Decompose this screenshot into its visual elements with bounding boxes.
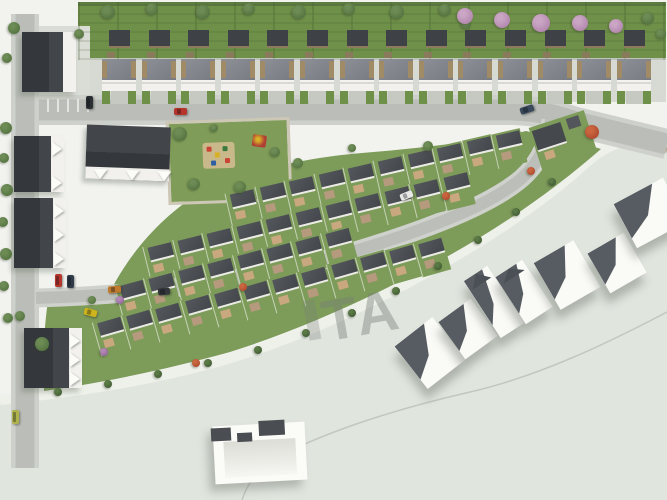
canopy-triangle — [70, 372, 80, 386]
tree — [243, 3, 255, 15]
roof — [302, 266, 329, 287]
tree — [35, 337, 49, 351]
terrace-right — [210, 61, 215, 78]
car — [158, 287, 171, 295]
patio — [271, 235, 283, 245]
front-green-r — [445, 91, 453, 104]
main-roof — [260, 59, 294, 82]
roof — [148, 242, 175, 262]
rear-patio — [543, 52, 551, 58]
roof — [467, 136, 494, 156]
patio — [272, 264, 284, 274]
roof — [384, 186, 411, 206]
site-plan-render: TA — [0, 0, 667, 500]
mid-house — [202, 256, 240, 298]
terrace-right — [646, 61, 651, 78]
tree — [609, 19, 623, 33]
canopy-triangle — [157, 171, 171, 181]
driveway — [309, 91, 326, 104]
terrace-left — [300, 61, 305, 78]
driveway — [467, 91, 484, 104]
mid-house — [432, 141, 469, 182]
terrace-right — [329, 61, 334, 78]
driveway — [269, 91, 286, 104]
car — [12, 410, 19, 424]
patio — [249, 302, 261, 312]
tree — [439, 4, 451, 16]
tree — [0, 217, 8, 227]
terraced-house — [615, 28, 654, 104]
terrace-right — [289, 61, 294, 78]
tree — [585, 125, 599, 139]
terraced-house — [100, 28, 139, 104]
roof — [237, 250, 264, 271]
terrace-left — [102, 61, 107, 78]
mid-house — [173, 263, 211, 305]
play-equipment — [211, 160, 216, 165]
patio — [360, 214, 372, 224]
tree — [390, 5, 404, 19]
rear-patio — [582, 52, 590, 58]
play-equipment — [225, 158, 230, 163]
main-roof — [142, 59, 176, 82]
front-green-l — [538, 91, 546, 104]
front-green-r — [564, 91, 572, 104]
mid-house — [150, 300, 188, 342]
facade — [181, 84, 215, 91]
front-green-r — [603, 91, 611, 104]
terraced-house — [219, 28, 258, 104]
future-road-line — [242, 312, 667, 500]
top-garden-strip — [78, 2, 666, 62]
front-green-r — [286, 91, 294, 104]
roof-slope — [534, 240, 601, 310]
mid-house — [379, 184, 417, 225]
car — [519, 104, 534, 115]
terrace-left — [221, 61, 226, 78]
apartment-building — [14, 136, 64, 192]
facade — [419, 84, 453, 91]
patio — [242, 242, 254, 252]
rear-roof — [505, 30, 526, 48]
driveway — [111, 91, 128, 104]
terrace-left — [260, 61, 265, 78]
tree — [116, 296, 124, 304]
roof — [214, 288, 241, 309]
front-green-r — [524, 91, 532, 104]
patio — [337, 280, 349, 290]
front-green-r — [484, 91, 492, 104]
patio — [330, 221, 342, 231]
terrace-left — [577, 61, 582, 78]
mid-house — [92, 315, 130, 357]
mid-house — [121, 307, 159, 349]
terrace-right — [171, 61, 176, 78]
terrace-left — [498, 61, 503, 78]
patio — [220, 309, 232, 319]
tree — [293, 158, 303, 168]
roof — [14, 198, 66, 268]
tree — [154, 370, 162, 378]
tree — [254, 346, 262, 354]
terraced-house — [536, 28, 575, 104]
tree — [343, 3, 355, 15]
roof — [266, 214, 293, 234]
car — [108, 286, 121, 294]
tree — [642, 12, 654, 24]
front-green-l — [617, 91, 625, 104]
canopy-triangle — [52, 142, 62, 156]
car-glass — [160, 289, 165, 294]
car-glass — [522, 107, 528, 113]
mid-house — [290, 233, 328, 275]
roof — [149, 272, 176, 293]
terraced-house — [179, 28, 218, 104]
front-green-r — [366, 91, 374, 104]
roof — [355, 193, 382, 213]
rear-patio — [226, 52, 234, 58]
play-equipment — [206, 147, 211, 152]
roof — [325, 200, 352, 220]
white-concept-house — [394, 317, 465, 389]
patio — [243, 271, 255, 281]
roof — [156, 302, 183, 323]
main-roof — [419, 59, 453, 82]
rear-patio — [345, 52, 353, 58]
roof — [243, 281, 270, 302]
front-green-l — [419, 91, 427, 104]
driveway — [388, 91, 405, 104]
tree — [0, 122, 12, 134]
main-roof — [458, 59, 492, 82]
roof — [24, 328, 82, 388]
hedge-texture — [78, 2, 666, 60]
facade — [498, 84, 532, 91]
tree — [100, 348, 108, 356]
tree — [572, 15, 588, 31]
terrace-right — [250, 61, 255, 78]
facade-strip — [69, 328, 82, 388]
terraced-house — [298, 28, 337, 104]
terrace-left — [419, 61, 424, 78]
front-green-l — [181, 91, 189, 104]
roof-slope — [464, 266, 525, 338]
roof-slope — [394, 317, 465, 389]
front-green-l — [260, 91, 268, 104]
tree — [302, 329, 310, 337]
car-glass — [56, 276, 58, 285]
car-glass — [13, 412, 15, 422]
rear-patio — [107, 52, 115, 58]
tree — [494, 12, 510, 28]
terrace-right — [369, 61, 374, 78]
rear-roof — [228, 30, 249, 48]
mid-house — [343, 161, 380, 202]
tree — [88, 296, 96, 304]
main-roof — [102, 59, 136, 82]
canopy-triangle — [54, 228, 64, 242]
rear-patio — [186, 52, 194, 58]
facade — [221, 84, 255, 91]
white-concept-house — [587, 233, 646, 294]
parking-lines — [48, 99, 88, 112]
patio — [383, 177, 395, 187]
car — [399, 190, 414, 201]
tree — [192, 359, 200, 367]
canopy-triangle — [54, 252, 64, 266]
car-glass — [86, 309, 92, 315]
patio — [191, 316, 203, 326]
patio — [125, 301, 137, 311]
terrace-right — [527, 61, 532, 78]
roof-tab-mid — [237, 432, 252, 442]
driveway — [547, 91, 564, 104]
terrace-right — [487, 61, 492, 78]
tree — [0, 153, 9, 163]
facade-strip — [85, 167, 169, 182]
patio — [301, 256, 313, 266]
tree — [656, 29, 666, 39]
rear-patio — [622, 52, 630, 58]
terrace-right — [606, 61, 611, 78]
facade — [617, 84, 651, 91]
roof — [407, 150, 434, 170]
mid-house — [325, 257, 363, 299]
car-glass — [110, 287, 115, 292]
mid-house — [231, 219, 269, 260]
roof — [97, 317, 124, 338]
mid-house — [320, 198, 358, 239]
main-roof — [538, 59, 572, 82]
rear-roof — [347, 30, 368, 48]
apartment-building — [24, 328, 82, 388]
patio — [154, 293, 166, 303]
patio — [472, 157, 484, 167]
mid-house — [290, 205, 328, 246]
front-green-l — [102, 91, 110, 104]
mid-house — [172, 233, 210, 274]
canopy-triangle — [70, 353, 80, 367]
facade-strip — [53, 198, 66, 268]
rear-roof — [584, 30, 605, 48]
patio — [307, 287, 319, 297]
front-green-r — [247, 91, 255, 104]
ground-svg — [0, 0, 667, 500]
roof — [325, 228, 352, 249]
driveway — [190, 91, 207, 104]
apartment-courtyard — [18, 26, 90, 98]
trees — [0, 0, 667, 500]
roof — [208, 258, 235, 279]
apartment-building — [85, 125, 171, 182]
mid-house — [114, 278, 152, 320]
tree — [512, 208, 520, 216]
roof — [14, 136, 64, 192]
car-glass — [402, 193, 408, 199]
terrace-left — [617, 61, 622, 78]
flower-bed — [252, 134, 268, 148]
terrace-left — [142, 61, 147, 78]
mid-house — [261, 212, 299, 253]
patio — [390, 207, 402, 217]
playground — [202, 142, 235, 169]
terrace-right — [131, 61, 136, 78]
roof — [177, 235, 204, 255]
tree — [204, 359, 212, 367]
patio — [331, 249, 343, 259]
patio — [264, 203, 276, 213]
driveway — [230, 91, 247, 104]
roof — [532, 122, 567, 152]
patio — [419, 200, 431, 210]
main-roof — [379, 59, 413, 82]
white-concept-house — [614, 178, 667, 248]
watermark: TA — [0, 0, 667, 500]
car — [174, 108, 187, 115]
front-green-l — [300, 91, 308, 104]
tree — [348, 309, 356, 317]
front-green-r — [128, 91, 136, 104]
ground-base — [0, 0, 667, 500]
tree — [292, 5, 306, 19]
terraced-house — [140, 28, 179, 104]
rear-roof — [188, 30, 209, 48]
mid-house — [296, 264, 334, 306]
mid-house — [238, 279, 276, 321]
tree — [8, 22, 20, 34]
main-roof — [181, 59, 215, 82]
mid-house — [313, 167, 350, 208]
gravel-path — [560, 128, 667, 150]
patio — [395, 266, 407, 276]
patio — [544, 149, 556, 160]
roof — [296, 235, 323, 256]
patio — [353, 183, 365, 193]
patio — [442, 164, 454, 174]
roof — [437, 143, 464, 163]
tree — [442, 192, 450, 200]
tree — [101, 5, 115, 19]
boundary-verge — [0, 134, 667, 400]
canopy-triangle — [125, 170, 139, 180]
rear-roof — [149, 30, 170, 48]
patio — [212, 249, 224, 259]
tree — [461, 19, 471, 29]
front-green-l — [221, 91, 229, 104]
facade — [379, 84, 413, 91]
car — [67, 275, 74, 288]
driveway — [507, 91, 524, 104]
patio — [132, 330, 144, 340]
mid-house — [267, 271, 305, 313]
tree — [348, 144, 356, 152]
front-green-r — [405, 91, 413, 104]
terrace-right — [567, 61, 572, 78]
top-road — [12, 110, 667, 144]
canopy-triangle — [93, 169, 107, 179]
tree — [527, 167, 535, 175]
mid-house — [491, 128, 528, 169]
patio — [182, 256, 194, 266]
roof-slope — [495, 260, 552, 324]
driveway — [586, 91, 603, 104]
facade — [300, 84, 334, 91]
roof — [496, 130, 523, 150]
courtyard — [223, 438, 297, 478]
tree — [474, 236, 482, 244]
rear-roof — [109, 30, 130, 48]
top-front-path — [78, 58, 666, 102]
roof-tab-left — [211, 428, 232, 442]
rear-patio — [384, 52, 392, 58]
roof — [236, 221, 263, 241]
facade — [142, 84, 176, 91]
tree — [104, 380, 112, 388]
patio — [103, 338, 115, 348]
tree — [0, 281, 9, 291]
facade-strip — [51, 136, 64, 192]
roof — [22, 32, 76, 92]
apartment-building — [22, 32, 76, 92]
canopy-triangle — [52, 176, 62, 190]
terraced-house — [456, 28, 495, 104]
patio — [366, 273, 378, 283]
front-green-l — [577, 91, 585, 104]
car — [83, 308, 97, 318]
cars — [0, 0, 667, 500]
shed — [566, 115, 582, 129]
roof — [207, 228, 234, 248]
main-roof — [617, 59, 651, 82]
rear-patio — [147, 52, 155, 58]
play-equipment — [215, 152, 220, 157]
facade-strip — [63, 32, 76, 92]
terraced-house — [377, 28, 416, 104]
roof — [414, 179, 441, 199]
apartment-building — [14, 198, 66, 268]
terraced-house — [575, 28, 614, 104]
front-green-l — [340, 91, 348, 104]
watermark-partial-letter — [303, 299, 322, 340]
roof — [272, 274, 299, 295]
mid-house — [261, 241, 299, 283]
park — [169, 120, 290, 202]
rear-roof — [624, 30, 645, 48]
terraced-house — [258, 28, 297, 104]
main-roof — [498, 59, 532, 82]
tree — [457, 8, 473, 24]
roof — [126, 310, 153, 331]
tree — [54, 388, 62, 396]
main-roof — [577, 59, 611, 82]
tree — [532, 14, 550, 32]
front-green-r — [168, 91, 176, 104]
mid-house — [179, 293, 217, 335]
roof-slope — [438, 299, 497, 360]
mid-house — [201, 226, 239, 267]
patio — [213, 278, 225, 288]
rear-patio — [305, 52, 313, 58]
mid-house-rows — [0, 0, 667, 500]
terrace-right — [448, 61, 453, 78]
terraced-house — [417, 28, 456, 104]
car-glass — [177, 109, 182, 114]
patio — [449, 193, 461, 203]
driveway — [626, 91, 643, 104]
roof — [348, 163, 375, 183]
mid-house — [384, 243, 422, 285]
tree — [392, 287, 400, 295]
